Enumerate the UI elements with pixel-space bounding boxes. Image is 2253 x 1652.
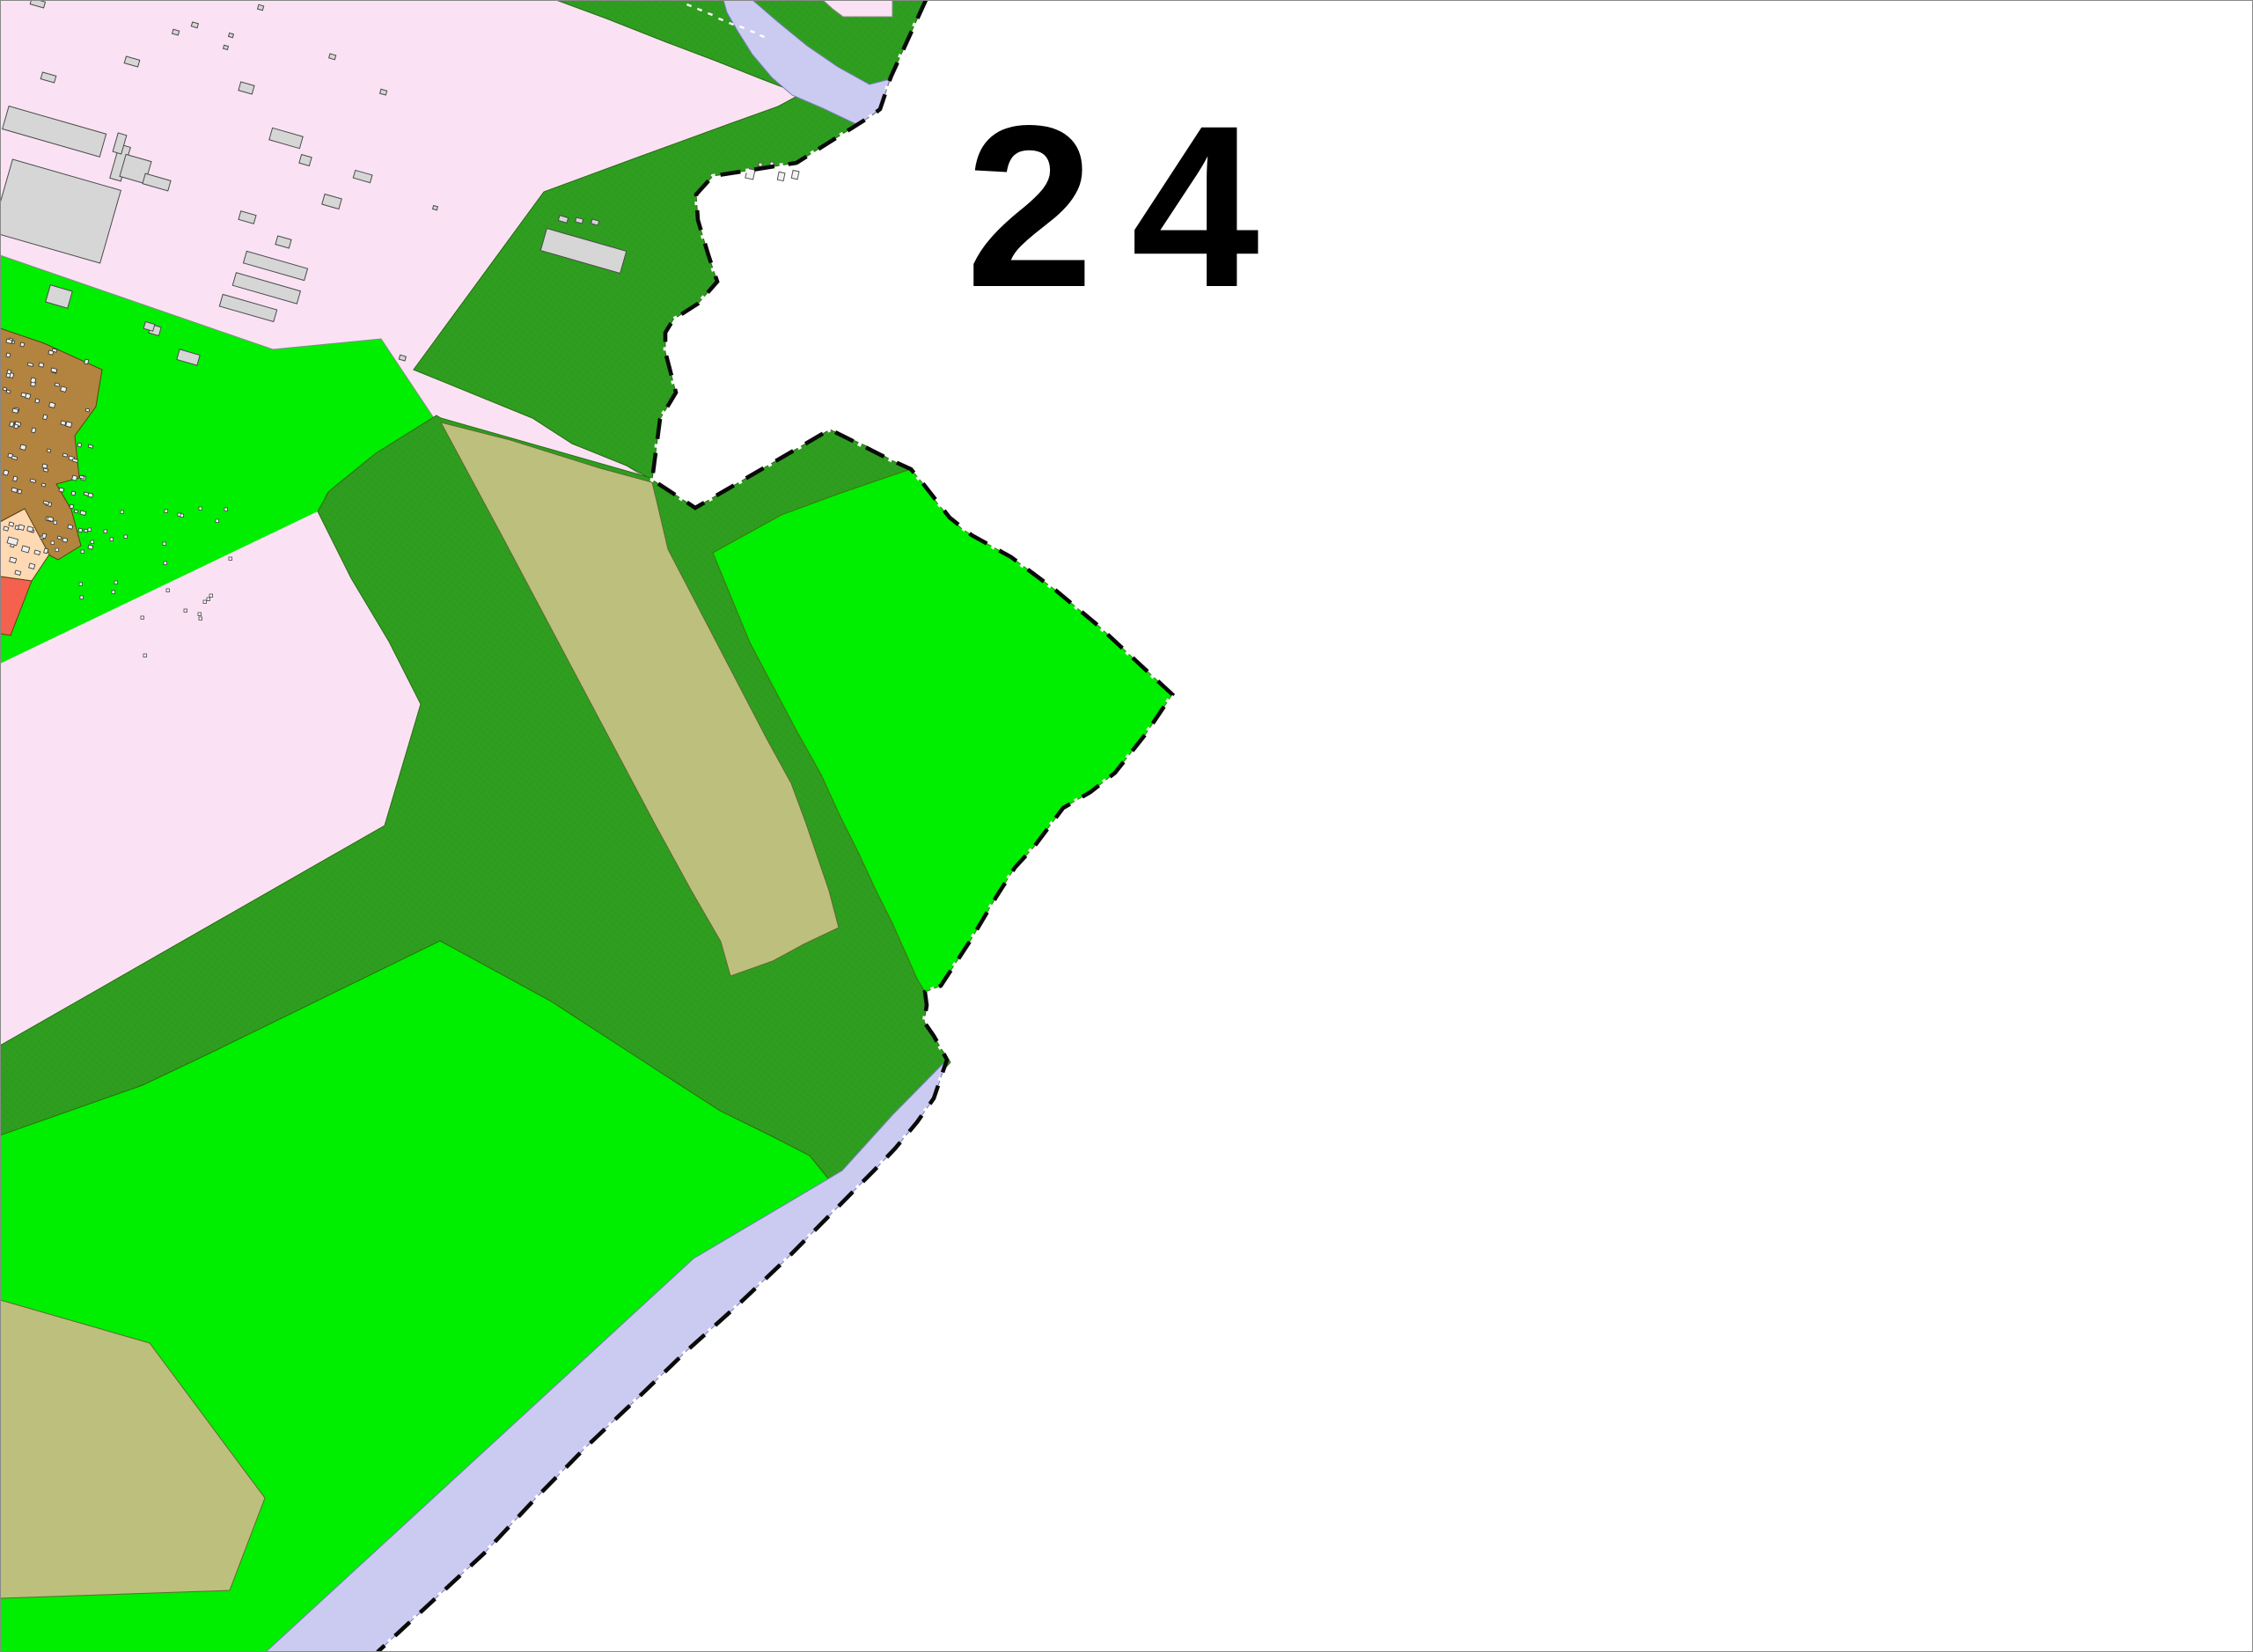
svg-text:4: 4 bbox=[1131, 77, 1260, 335]
svg-text:2: 2 bbox=[965, 77, 1094, 335]
